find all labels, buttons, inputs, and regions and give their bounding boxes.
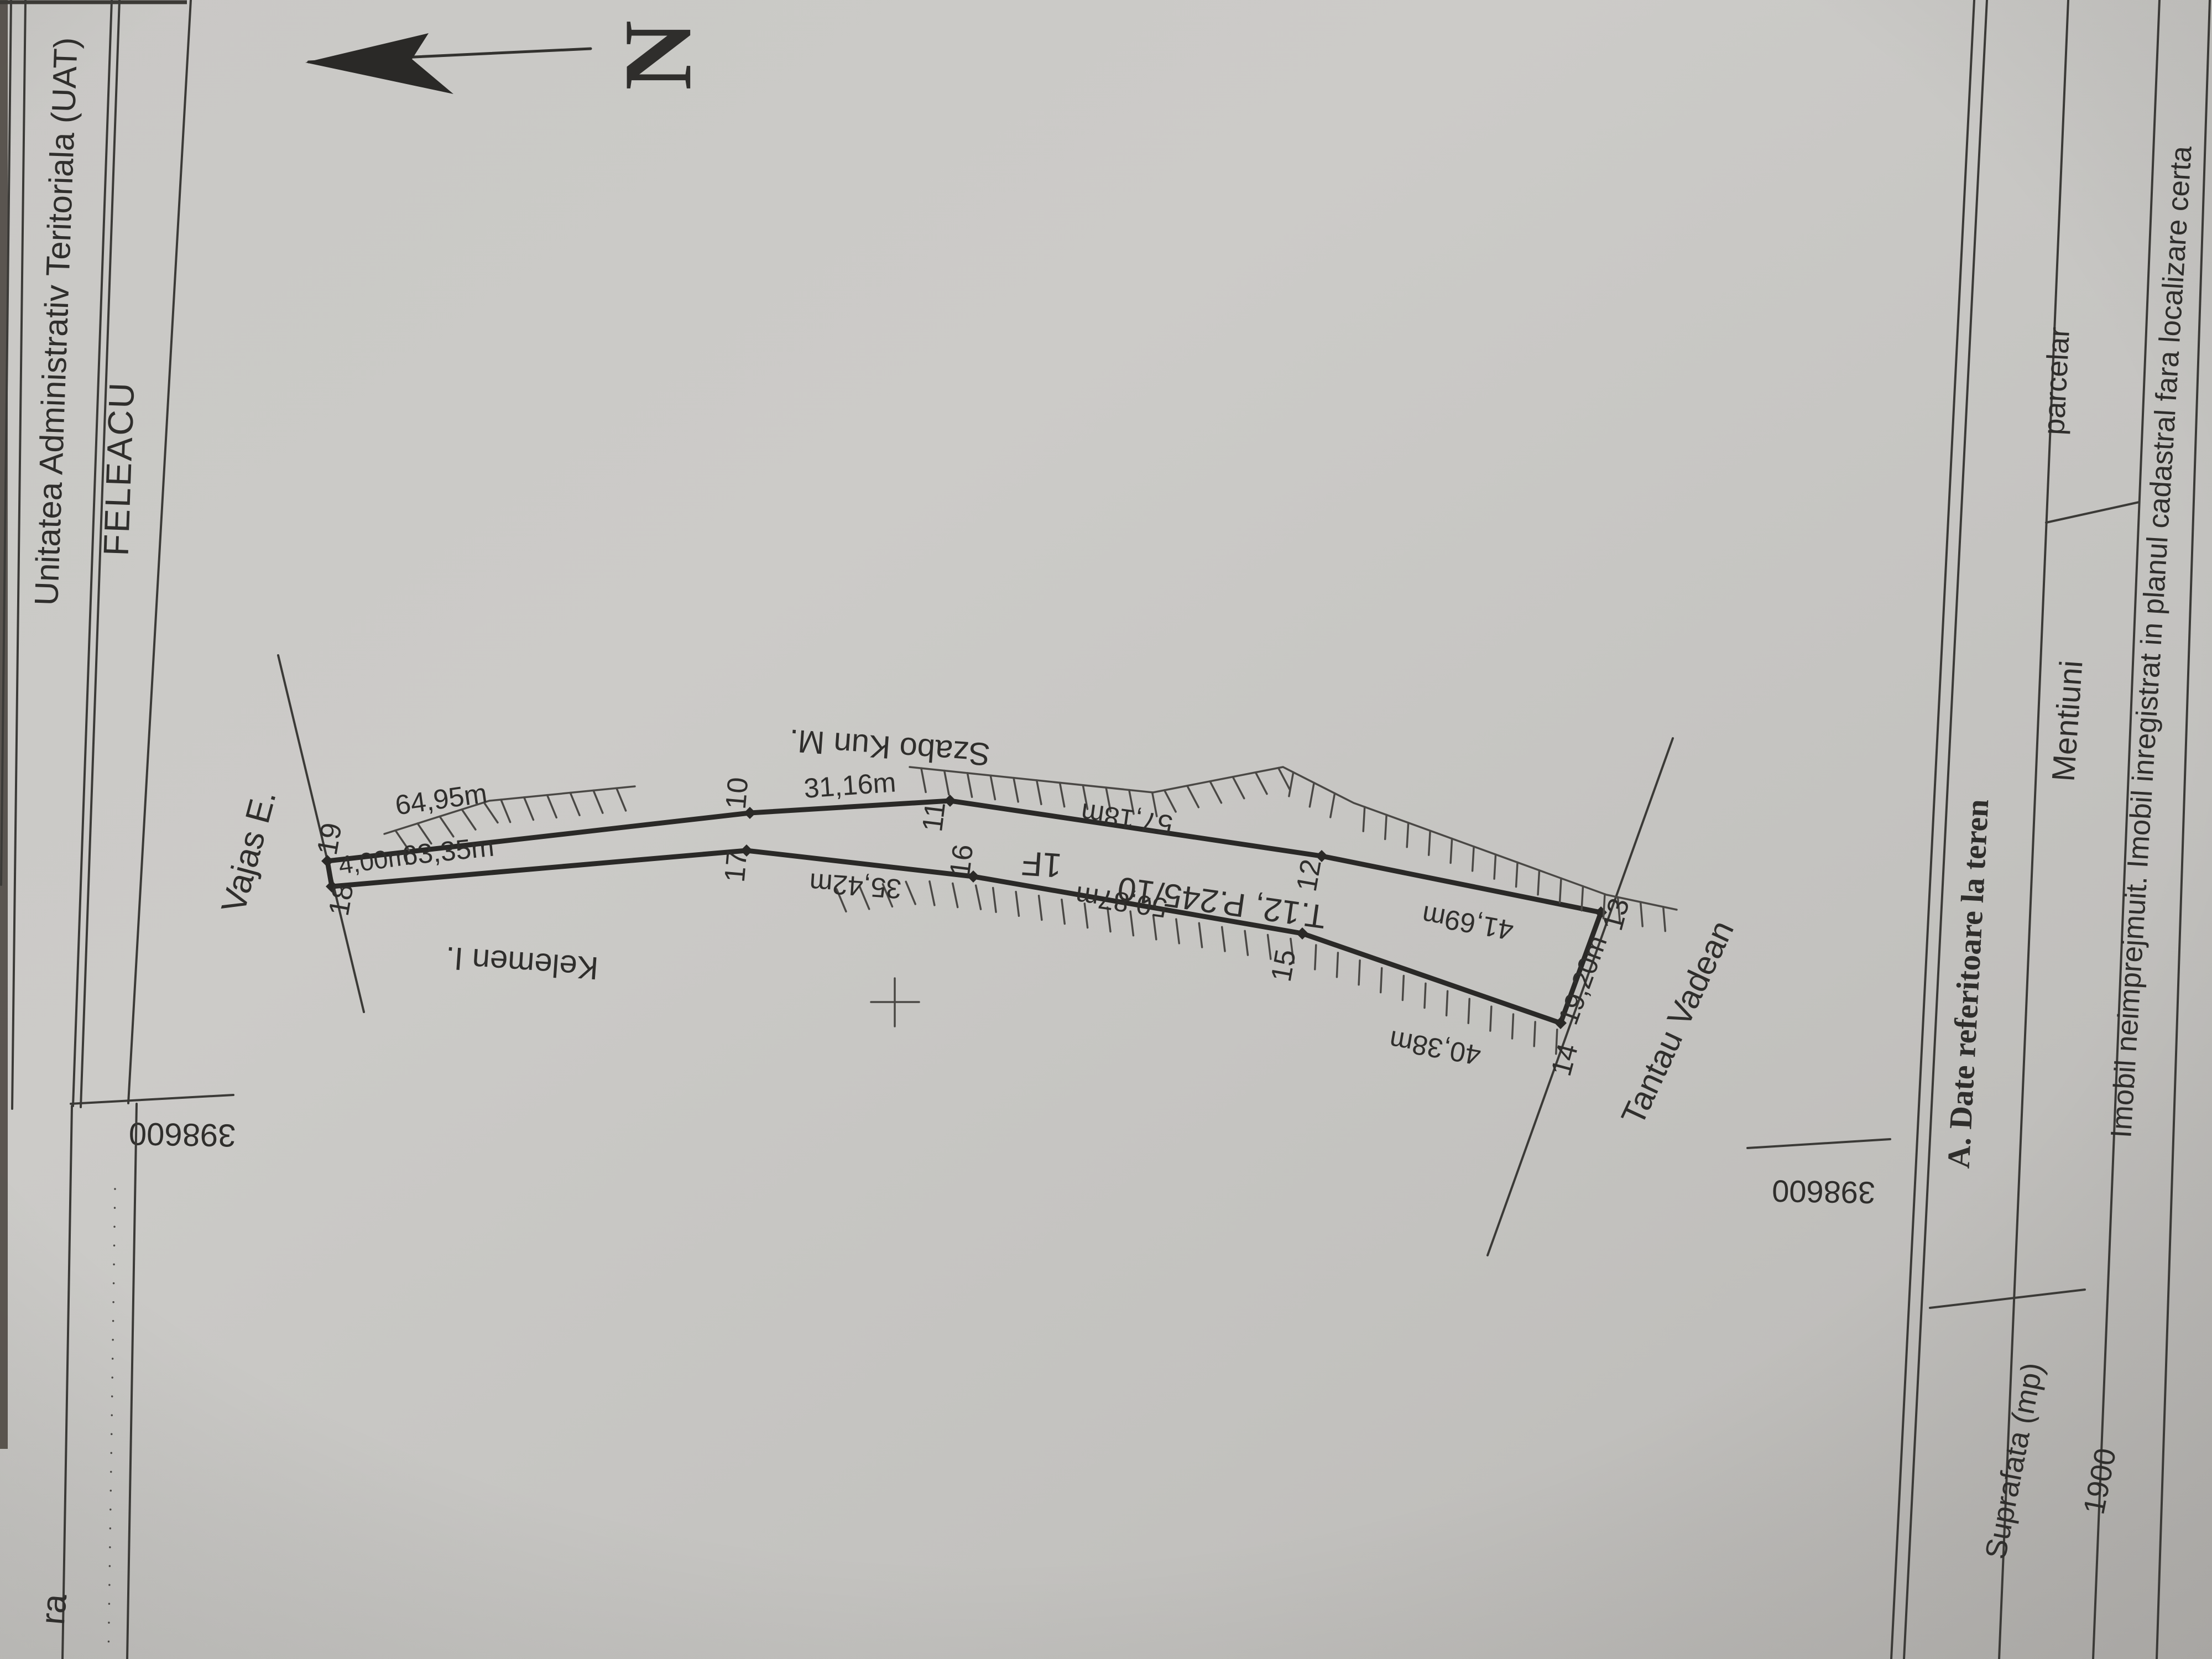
point-label: 15 — [1265, 947, 1302, 984]
col-header-parcelar: parcelar — [2037, 326, 2076, 436]
north-label: N — [604, 20, 711, 90]
point-label: 17 — [719, 849, 754, 884]
point-label: 12 — [1291, 857, 1328, 894]
point-label: 11 — [916, 800, 952, 834]
point-label: 18 — [323, 881, 360, 919]
land-category-label: 1F — [1020, 844, 1063, 885]
uat-value: FELEACU — [96, 380, 142, 557]
edge-fragment-text: ra — [34, 1592, 75, 1626]
cadastral-plan-photo: Unitatea Administrativ Teritoriala (UAT)… — [0, 0, 2212, 1659]
grid-label-left: 398600 — [128, 1115, 236, 1153]
grid-label-right: 398600 — [1772, 1173, 1876, 1210]
measurement-label: 35,42m — [808, 867, 902, 904]
cadastral-plan-canvas: Unitatea Administrativ Teritoriala (UAT)… — [0, 0, 2212, 1659]
point-label: 10 — [720, 776, 755, 811]
point-label: 16 — [944, 843, 980, 878]
measurement-label: 31,16m — [803, 766, 897, 804]
